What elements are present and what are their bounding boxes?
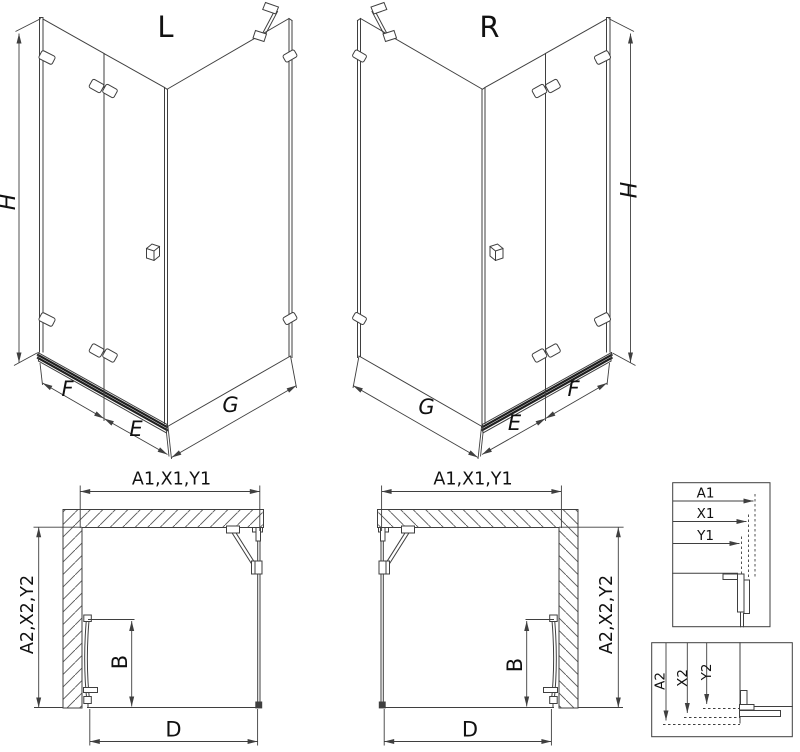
plan-left-opening-label: D [165,718,181,742]
variant-label-l: L [157,10,173,44]
dim-label-e-left: E [129,417,143,441]
detail-x1-label: X1 [697,506,715,522]
dim-label-f-left: F [61,377,74,401]
detail-y1-label: Y1 [696,528,714,544]
dim-label-g-right: G [418,395,434,419]
diagram-page: L H F E G R H G E F A1,X1,Y1 A2,X2,Y2 B … [0,0,800,752]
plan-left-door-width-label: B [108,655,132,669]
plan-right-width-label: A1,X1,Y1 [433,470,512,490]
plan-view-right [378,486,624,746]
iso-view-right [352,3,636,460]
detail-a1-label: A1 [697,486,715,502]
plan-view-left [34,486,264,746]
dim-label-h-left: H [0,194,21,211]
plan-right-opening-label: D [462,718,478,742]
dim-label-h-right: H [614,182,639,199]
plan-left-width-label: A1,X1,Y1 [132,470,211,490]
dim-label-e-right: E [508,411,522,435]
dim-label-f-right: F [567,377,580,401]
detail-a2-label: A2 [653,672,669,690]
detail-y2-label: Y2 [699,664,715,682]
plan-right-depth-label: A2,X2,Y2 [597,575,617,654]
dim-label-g-left: G [222,393,238,417]
detail-depth-adjustment [652,643,793,737]
detail-width-adjustment [673,483,770,627]
wall-profile-section-top [723,574,750,627]
plan-left-depth-label: A2,X2,Y2 [18,575,38,654]
wall-profile-section-side [740,691,793,717]
plan-right-door-width-label: B [503,658,527,672]
variant-label-r: R [479,10,499,44]
iso-view-left [14,3,298,460]
technical-diagram: L H F E G R H G E F A1,X1,Y1 A2,X2,Y2 B … [0,0,800,752]
detail-x2-label: X2 [675,669,691,687]
